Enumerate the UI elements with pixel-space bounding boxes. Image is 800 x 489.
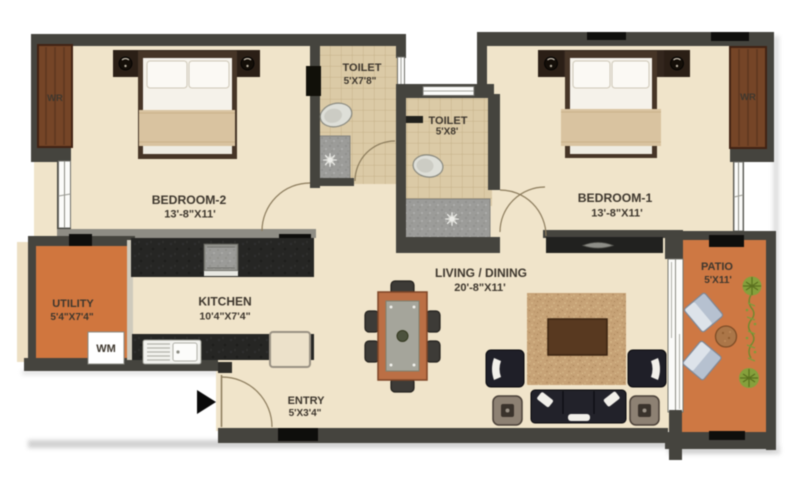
svg-text:TOILET: TOILET [429, 115, 468, 127]
svg-text:BEDROOM-2: BEDROOM-2 [152, 193, 227, 207]
svg-text:5'4"X7'4": 5'4"X7'4" [50, 312, 93, 323]
svg-text:20'-8"X11': 20'-8"X11' [454, 282, 506, 294]
svg-text:KITCHEN: KITCHEN [198, 295, 251, 309]
svg-text:5'X8': 5'X8' [436, 127, 459, 138]
svg-text:TOILET: TOILET [343, 62, 382, 74]
svg-text:UTILITY: UTILITY [52, 298, 94, 310]
svg-text:13'-8"X11': 13'-8"X11' [591, 208, 643, 220]
svg-text:WR: WR [740, 92, 756, 103]
svg-text:5'X11': 5'X11' [704, 275, 732, 286]
svg-text:5'X7'8": 5'X7'8" [344, 76, 377, 87]
svg-text:10'4"X7'4": 10'4"X7'4" [199, 311, 250, 323]
svg-text:LIVING / DINING: LIVING / DINING [435, 266, 527, 280]
svg-text:ENTRY: ENTRY [288, 395, 326, 407]
svg-text:WR: WR [47, 93, 63, 104]
svg-text:PATIO: PATIO [701, 261, 733, 273]
svg-text:BEDROOM-1: BEDROOM-1 [578, 191, 653, 205]
svg-text:WM: WM [96, 343, 116, 355]
svg-text:13'-8"X11': 13'-8"X11' [164, 209, 216, 221]
svg-text:5'X3'4": 5'X3'4" [289, 408, 322, 419]
